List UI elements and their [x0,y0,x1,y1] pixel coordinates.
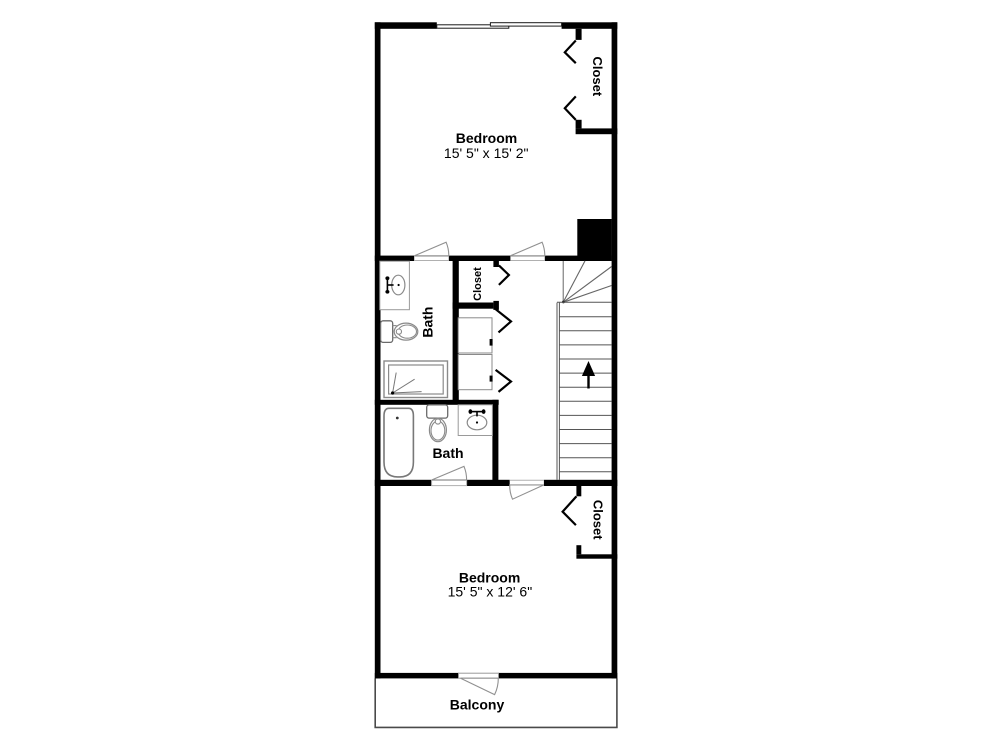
svg-text:15' 5" x 15' 2": 15' 5" x 15' 2" [444,145,529,161]
svg-text:15' 5" x 12' 6": 15' 5" x 12' 6" [448,583,533,599]
svg-text:Closet: Closet [590,56,605,96]
svg-text:Bath: Bath [432,445,463,461]
svg-text:Balcony: Balcony [450,696,505,712]
svg-text:Bath: Bath [420,307,436,338]
svg-text:Bedroom: Bedroom [456,130,517,146]
svg-text:Closet: Closet [472,267,484,301]
svg-text:Closet: Closet [591,500,606,540]
